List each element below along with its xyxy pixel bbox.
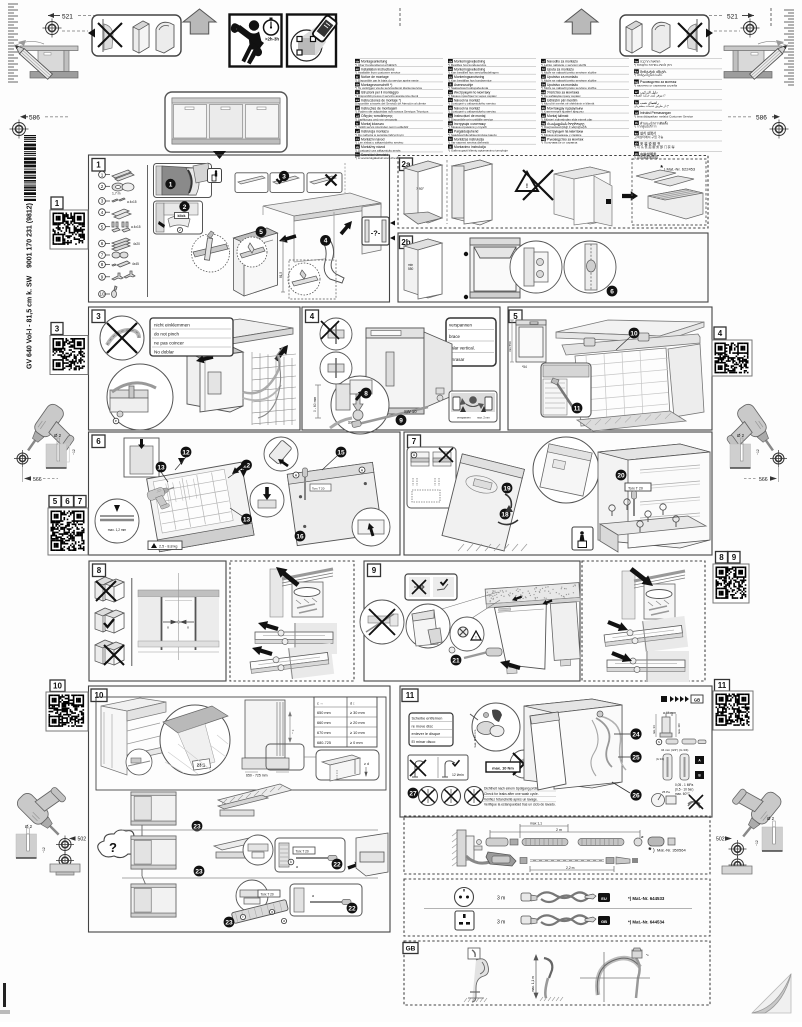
svg-text:5: 5 <box>53 497 58 506</box>
svg-text:2: 2 <box>183 204 187 211</box>
svg-text:Torx T 20: Torx T 20 <box>296 850 309 854</box>
svg-text:8: 8 <box>719 553 724 562</box>
svg-text:11: 11 <box>718 681 727 690</box>
svg-text:8: 8 <box>97 566 102 575</box>
svg-text:enlever le disque: enlever le disque <box>412 732 441 736</box>
svg-text:يتوفر لدى خدمة العملاء (*: يتوفر لدى خدمة العملاء (* <box>634 94 666 98</box>
svg-text:-?-: -?- <box>371 229 381 238</box>
svg-text:4x45: 4x45 <box>132 262 139 266</box>
svg-text:9: 9 <box>732 553 737 562</box>
svg-text:7: 7 <box>78 497 83 506</box>
svg-text:9: 9 <box>372 566 377 575</box>
svg-text:*) Galima gauti klientų aptarn: *) Galima gauti klientų aptarnavimo tarn… <box>448 148 508 152</box>
svg-text:81,5: 81,5 <box>279 272 283 278</box>
svg-text:2,5 - 8,8 kg: 2,5 - 8,8 kg <box>159 545 177 549</box>
svg-text:Ø 2: Ø 2 <box>767 816 775 821</box>
svg-text:f: f <box>243 915 244 919</box>
svg-text:22: 22 <box>333 861 341 868</box>
svg-text:23: 23 <box>195 868 203 875</box>
svg-text:nicht einklemmen: nicht einklemmen <box>154 323 190 328</box>
svg-text:d ↕: d ↕ <box>350 702 355 706</box>
svg-text:4: 4 <box>718 329 723 338</box>
svg-text:Scheibe entfernen: Scheibe entfernen <box>412 717 443 721</box>
svg-text:10: 10 <box>53 682 62 691</box>
svg-text:Torx T 20: Torx T 20 <box>312 487 325 491</box>
svg-text:34 mm (3/4") (G 3/4): 34 mm (3/4") (G 3/4) <box>661 748 688 752</box>
svg-text:1: 1 <box>101 172 104 177</box>
svg-text:a: a <box>312 894 314 898</box>
svg-text:brace: brace <box>449 334 461 339</box>
svg-text:≥ d: ≥ d <box>364 762 369 766</box>
svg-text:7: 7 <box>412 437 417 446</box>
svg-text:650 - 725 mm: 650 - 725 mm <box>246 774 268 778</box>
svg-text:5: 5 <box>259 229 263 236</box>
svg-text:5: 5 <box>101 224 104 229</box>
svg-text:≥ 20 mm: ≥ 20 mm <box>350 721 365 725</box>
svg-text:9: 9 <box>399 417 403 424</box>
svg-text:3: 3 <box>55 324 60 333</box>
svg-text:?: ? <box>109 840 117 855</box>
svg-text:502: 502 <box>716 837 725 843</box>
svg-text:*) ניתן להשיג בשירות הלקוחות: *) ניתן להשיג בשירות הלקוחות <box>634 63 672 67</box>
svg-text:!: ! <box>475 636 476 640</box>
svg-text:1,7 m: 1,7 m <box>112 192 121 196</box>
svg-text:586: 586 <box>756 115 767 122</box>
svg-text:2: 2 <box>179 228 181 232</box>
svg-text:26: 26 <box>632 792 640 799</box>
svg-text:1: 1 <box>169 181 173 188</box>
svg-text:~12: ~12 <box>755 840 759 846</box>
svg-text:521: 521 <box>62 14 73 21</box>
svg-text:El minar disco: El minar disco <box>412 740 436 744</box>
svg-text:از طریق خدمات مشتریان (*: از طریق خدمات مشتریان (* <box>634 104 670 108</box>
svg-text:c ↔: c ↔ <box>317 702 323 706</box>
svg-text:12 l/min: 12 l/min <box>452 773 464 777</box>
svg-text:max. 60°C: max. 60°C <box>675 792 691 796</box>
svg-text:13: 13 <box>243 516 251 523</box>
svg-text:Dichtheit nach einem Spülgang: Dichtheit nach einem Spülgang prüfen. <box>484 787 541 791</box>
svg-text:19: 19 <box>503 485 511 492</box>
svg-text:2 m: 2 m <box>556 828 562 832</box>
svg-text:*) Mat.-Nr. 644534: *) Mat.-Nr. 644534 <box>628 920 665 925</box>
svg-text:*) налично от сервизна служба: *) налично от сервизна служба <box>634 83 677 87</box>
svg-text:680-725: 680-725 <box>317 741 331 745</box>
svg-text:670 mm: 670 mm <box>317 731 331 735</box>
svg-text:Torx T 20: Torx T 20 <box>261 893 274 897</box>
svg-text:max. Ø 16 mm: max. Ø 16 mm <box>473 729 477 748</box>
svg-text:*) จากศูนย์บริการ: *) จากศูนย์บริการ <box>634 125 657 129</box>
svg-text:9: 9 <box>101 274 104 279</box>
svg-text:10: 10 <box>99 292 105 297</box>
svg-text:GB: GB <box>694 698 700 703</box>
svg-text:23: 23 <box>193 823 201 830</box>
svg-text:(0,5 - 10 bar): (0,5 - 10 bar) <box>675 788 693 792</box>
svg-text:~12: ~12 <box>42 847 46 853</box>
svg-text:*) Получава се от сервиза: *) Получава се от сервиза <box>541 141 578 145</box>
svg-text:re move disc: re move disc <box>412 724 434 728</box>
svg-text:12: 12 <box>182 449 190 456</box>
svg-text:s: s <box>658 740 660 744</box>
svg-text:2,2 m: 2,2 m <box>566 866 575 870</box>
svg-text:27: 27 <box>409 790 417 797</box>
svg-text:g: g <box>271 910 273 914</box>
svg-text:0 - 60 mm: 0 - 60 mm <box>313 397 317 412</box>
svg-text:*) A vevőszolgálatnál szerezhe: *) A vevőszolgálatnál szerezhető be <box>355 156 403 160</box>
svg-text:klick: klick <box>178 214 186 218</box>
svg-text:~12: ~12 <box>72 449 76 455</box>
svg-text:~12: ~12 <box>756 449 760 455</box>
svg-text:20: 20 <box>617 472 625 479</box>
svg-text:고객샄터에서 구입 가능: 고객샄터에서 구입 가능 <box>634 134 664 139</box>
svg-text:k: k <box>290 860 292 864</box>
svg-text:Vérifiez l'étanchéité après un: Vérifiez l'étanchéité après un lavage. <box>484 797 538 801</box>
svg-text:a 4x15: a 4x15 <box>127 200 137 204</box>
svg-text:11: 11 <box>406 691 415 700</box>
svg-text:>2h-3h: >2h-3h <box>265 37 279 42</box>
svg-text:max. 1,2 mm: max. 1,2 mm <box>108 528 127 532</box>
svg-text:4: 4 <box>310 312 315 321</box>
svg-text:3 m: 3 m <box>497 896 505 902</box>
svg-text:25: 25 <box>632 754 640 761</box>
svg-text:13: 13 <box>157 464 165 471</box>
svg-text:GB: GB <box>601 919 607 924</box>
svg-text:586: 586 <box>29 115 40 122</box>
svg-text:? 90°: ? 90° <box>416 187 425 191</box>
svg-text:max 1,1: max 1,1 <box>530 822 542 826</box>
svg-text:4: 4 <box>101 210 104 215</box>
svg-text:*) მონტათების სამს.: *) მონტათების სამს. <box>634 73 663 77</box>
svg-text:e: e <box>115 419 117 423</box>
svg-text:Mat.-Nr. 350564: Mat.-Nr. 350564 <box>657 848 686 853</box>
svg-text:521: 521 <box>727 14 738 21</box>
svg-text:10: 10 <box>630 330 638 337</box>
svg-text:0,05 - 1 MPa: 0,05 - 1 MPa <box>675 783 693 787</box>
svg-text:≥ 30 mm: ≥ 30 mm <box>350 711 365 715</box>
svg-text:660 mm: 660 mm <box>317 721 331 725</box>
svg-text:9001 170 231 (9812): 9001 170 231 (9812) <box>27 203 34 268</box>
svg-text:a 4x15: a 4x15 <box>131 225 141 229</box>
svg-text:a: a <box>283 919 285 923</box>
svg-text:!: ! <box>526 183 528 190</box>
svg-text:max. 100: max. 100 <box>677 723 681 734</box>
svg-text:2: 2 <box>101 184 104 189</box>
svg-text:4x20: 4x20 <box>133 242 140 246</box>
svg-text:16: 16 <box>296 533 304 540</box>
svg-text:6: 6 <box>610 288 614 295</box>
svg-text:21: 21 <box>452 657 460 664</box>
svg-text:Verifique la estanqueidad tras: Verifique la estanqueidad tras un ciclo … <box>484 803 556 807</box>
svg-text:Ø 2: Ø 2 <box>54 433 62 438</box>
svg-text:~ c: ~ c <box>291 729 295 734</box>
svg-text:15: 15 <box>337 449 345 456</box>
svg-text:x: x <box>167 625 169 630</box>
svg-text:7: 7 <box>101 253 104 258</box>
svg-text:verspannen: verspannen <box>449 323 473 328</box>
svg-text:566: 566 <box>759 477 768 483</box>
svg-text:550: 550 <box>408 267 414 271</box>
svg-text:4: 4 <box>324 238 328 245</box>
svg-text:verspannen: verspannen <box>457 416 471 420</box>
svg-text:*54: *54 <box>522 365 527 369</box>
svg-text:18: 18 <box>501 511 509 518</box>
svg-text:GB: GB <box>406 945 416 952</box>
svg-text:1: 1 <box>96 161 101 170</box>
svg-text:Torx T 20: Torx T 20 <box>628 487 643 491</box>
svg-text:EU: EU <box>601 896 607 901</box>
svg-text:3 m: 3 m <box>497 920 505 926</box>
svg-text:23: 23 <box>225 919 233 926</box>
svg-text:650 mm: 650 mm <box>317 711 331 715</box>
svg-text:8: 8 <box>101 262 104 267</box>
svg-text:No doblar: No doblar <box>154 350 174 355</box>
svg-text:6: 6 <box>101 241 104 246</box>
svg-text:calar vertical.: calar vertical. <box>449 346 475 351</box>
svg-text:a: a <box>296 865 298 869</box>
svg-text:3: 3 <box>101 199 104 204</box>
svg-text:1: 1 <box>55 199 60 208</box>
svg-text:min. 34: min. 34 <box>652 725 656 734</box>
svg-text:11: 11 <box>574 405 581 412</box>
svg-text:*) bisa didapatkan melalui Cu: *) bisa didapatkan melalui Customer Serv… <box>634 114 693 118</box>
svg-text:≥ 0 mm: ≥ 0 mm <box>350 741 363 745</box>
svg-text:) Mat.-Nr. 622453: ) Mat.-Nr. 622453 <box>664 167 696 172</box>
svg-text:≥ 10 mm: ≥ 10 mm <box>350 731 365 735</box>
svg-text:x: x <box>187 625 189 630</box>
svg-text:GV 640 Vol-I - 81,5 cm k. SW: GV 640 Vol-I - 81,5 cm k. SW <box>27 275 34 369</box>
svg-text:6: 6 <box>96 437 101 446</box>
svg-text:22: 22 <box>348 905 356 912</box>
svg-text:24: 24 <box>632 731 640 738</box>
svg-text:*) 可 从 售 后 服 务 部 门 获 得: *) 可 从 售 后 服 务 部 门 获 得 <box>634 144 675 149</box>
svg-text:3: 3 <box>282 173 286 180</box>
svg-text:25 Pa: 25 Pa <box>662 790 670 794</box>
svg-text:max. 10 Nm: max. 10 Nm <box>492 766 514 771</box>
svg-text:do not pinch: do not pinch <box>154 332 179 337</box>
svg-text:ne pas coincer: ne pas coincer <box>154 341 184 346</box>
svg-text:max. 2 mm: max. 2 mm <box>477 416 490 420</box>
svg-text:SW 10: SW 10 <box>404 409 417 414</box>
svg-text:3: 3 <box>96 312 101 321</box>
svg-text:*) Mat.-Nr. 644533: *) Mat.-Nr. 644533 <box>628 896 665 901</box>
svg-text:6: 6 <box>65 497 70 506</box>
svg-text:502: 502 <box>78 837 87 843</box>
svg-text:min 550: min 550 <box>508 341 512 352</box>
svg-text:Check for leaks after one wa: Check for leaks after one wash cycle. <box>484 792 539 796</box>
svg-text:(G 3/4): (G 3/4) <box>656 757 664 761</box>
svg-text:Ø 2: Ø 2 <box>737 433 745 438</box>
svg-text:566: 566 <box>33 477 42 483</box>
svg-text:8: 8 <box>364 390 368 397</box>
svg-text:max. 1,1 m: max. 1,1 m <box>531 976 535 992</box>
